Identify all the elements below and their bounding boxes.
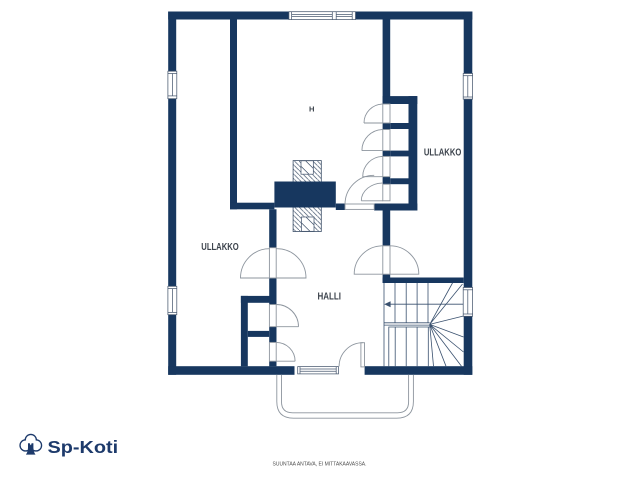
svg-text:HALLI: HALLI [317,291,341,302]
svg-text:ULLAKKO: ULLAKKO [424,148,462,159]
svg-text:Sp-Koti: Sp-Koti [48,437,119,457]
svg-text:SUUNTAA ANTAVA, EI MITTAKAAVAS: SUUNTAA ANTAVA, EI MITTAKAAVASSA. [273,462,367,468]
svg-text:ULLAKKO: ULLAKKO [201,242,239,253]
svg-text:H: H [309,105,314,114]
